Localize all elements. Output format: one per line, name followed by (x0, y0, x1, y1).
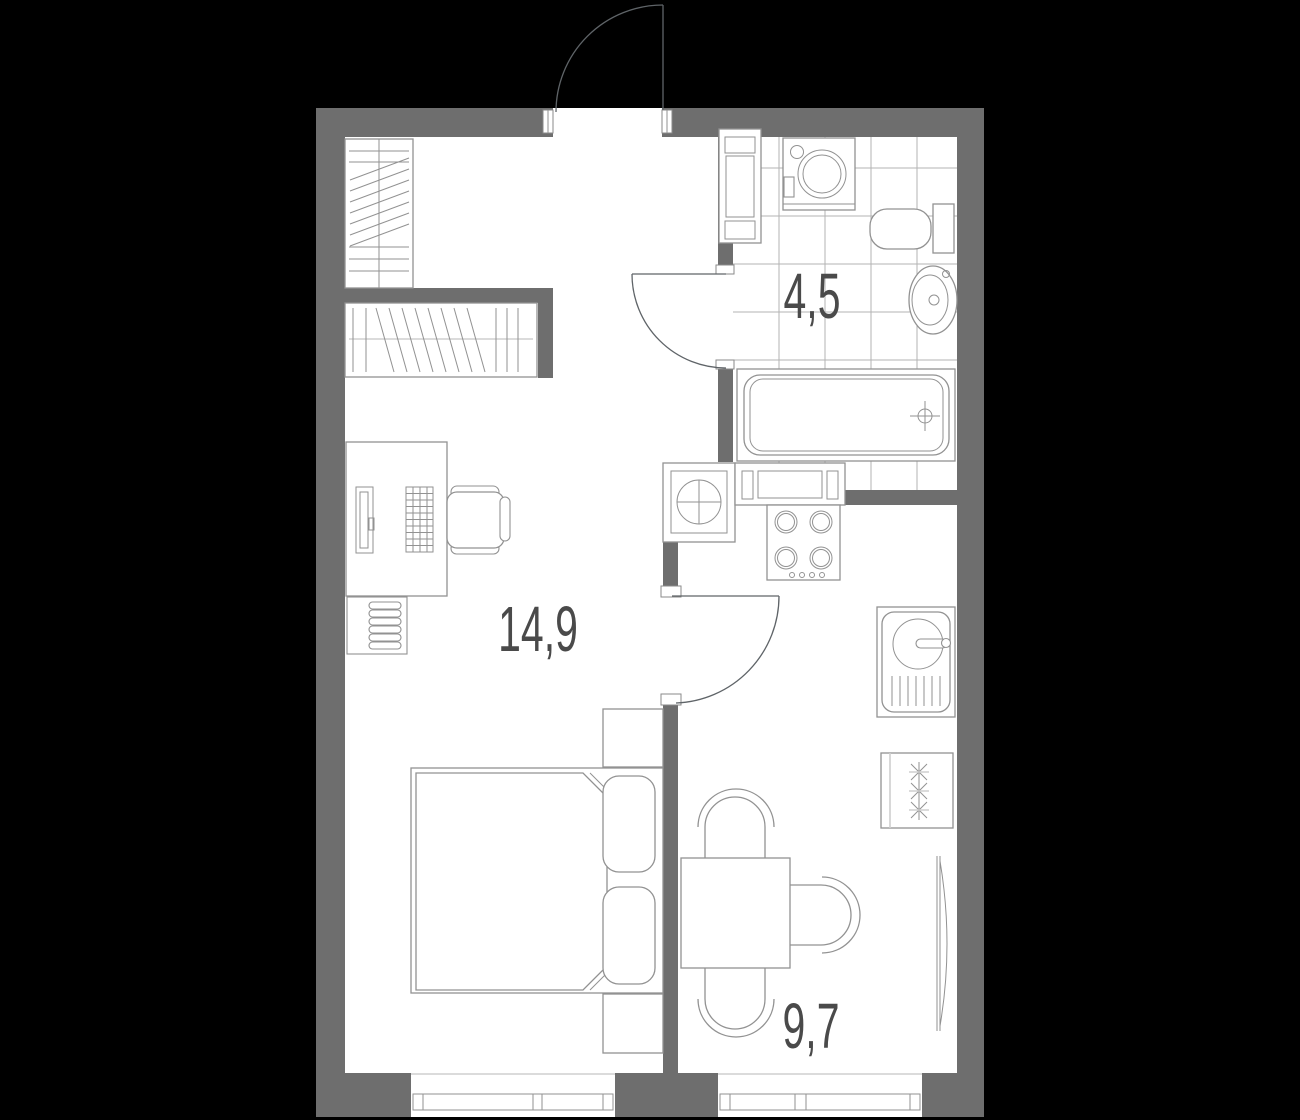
office-chair-icon (447, 486, 510, 554)
toilet-icon (870, 204, 954, 253)
pillow-icon (603, 887, 655, 984)
window-living (411, 1073, 615, 1117)
kitchen-area-label: 9,7 (783, 994, 840, 1058)
towel-dryer-icon (719, 129, 761, 243)
pillow-icon (603, 776, 655, 872)
floor-plan-drawing (0, 0, 1300, 1120)
radiator-icon (347, 597, 407, 654)
dining-table-icon (681, 858, 790, 968)
bathtub-icon (737, 369, 955, 461)
window-kitchen (718, 1073, 922, 1117)
washbasin-icon (909, 266, 957, 334)
ventilation-shaft-icon (663, 463, 735, 542)
washing-machine-icon (783, 138, 855, 210)
wardrobe-tall-icon (345, 139, 413, 288)
kitchen-counter-icon (735, 463, 845, 505)
cooktop-icon (767, 505, 840, 580)
floor-plan: 14,9 4,5 9,7 (0, 0, 1300, 1120)
desk-icon (346, 442, 447, 596)
bed-icon (411, 768, 663, 993)
wardrobe-low-icon (345, 303, 537, 377)
nightstand-icon (603, 994, 663, 1053)
bathroom-area-label: 4,5 (784, 264, 841, 328)
refrigerator-icon (881, 753, 953, 828)
blanket (416, 773, 607, 990)
nightstand-icon (603, 709, 663, 767)
kitchen-sink-icon (877, 607, 955, 717)
living-room-area-label: 14,9 (498, 597, 578, 661)
